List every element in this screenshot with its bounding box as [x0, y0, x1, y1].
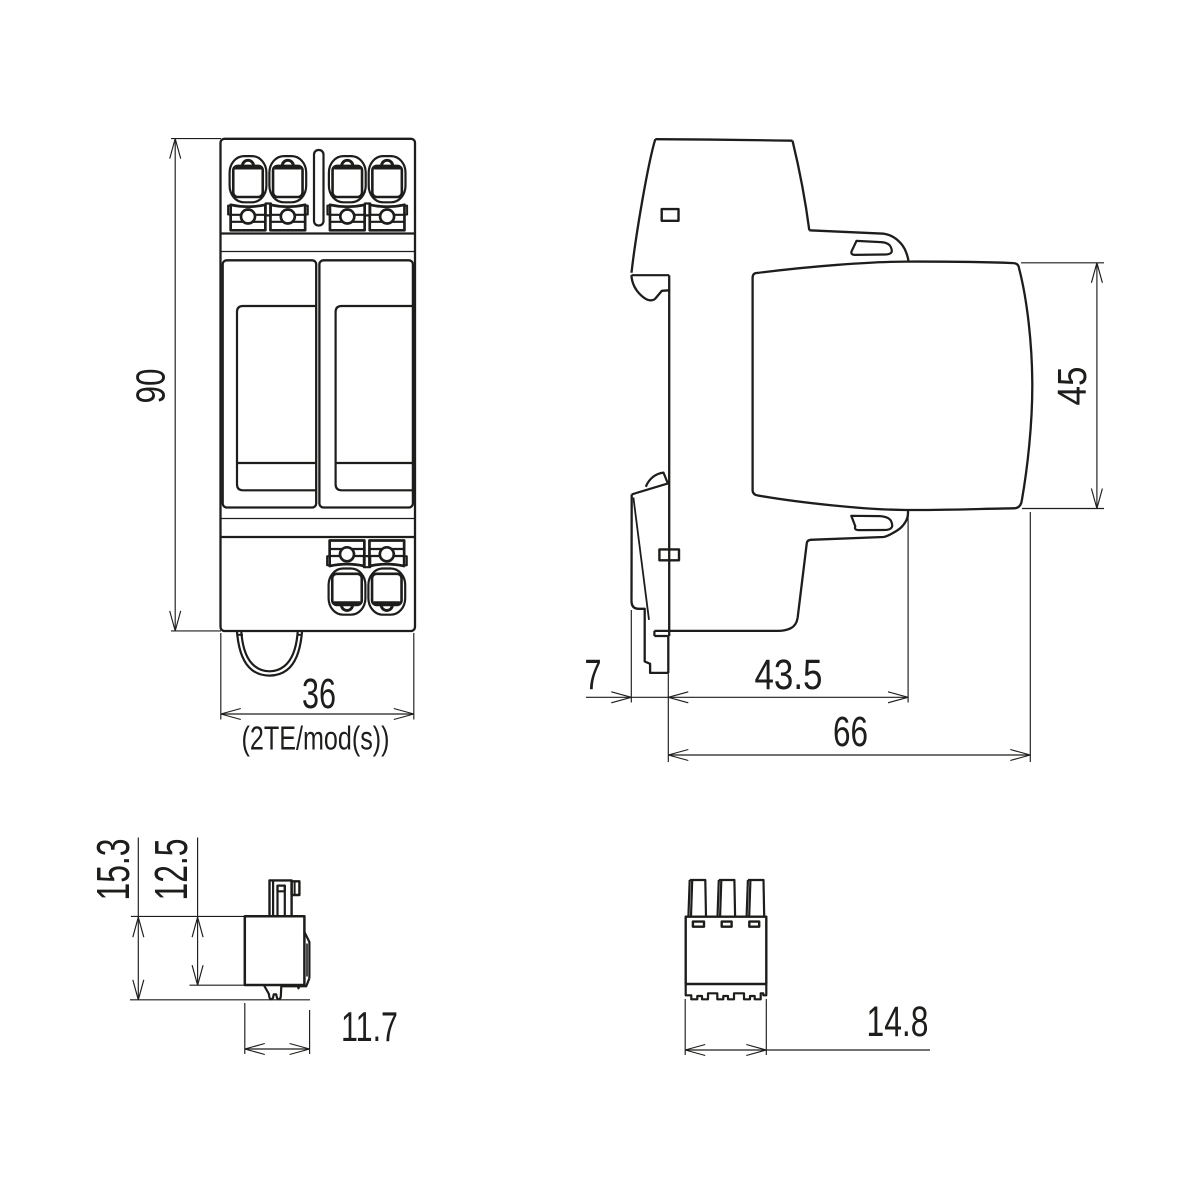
svg-text:(2TE/mod(s)): (2TE/mod(s)) — [242, 720, 390, 757]
svg-text:7: 7 — [585, 651, 602, 699]
svg-text:45: 45 — [1049, 367, 1095, 406]
svg-text:43.5: 43.5 — [755, 651, 823, 699]
svg-text:15.3: 15.3 — [87, 839, 139, 901]
svg-text:90: 90 — [128, 369, 174, 404]
svg-text:66: 66 — [833, 708, 868, 756]
svg-text:11.7: 11.7 — [341, 1003, 398, 1050]
svg-text:14.8: 14.8 — [867, 998, 929, 1046]
svg-text:12.5: 12.5 — [145, 839, 197, 901]
svg-text:36: 36 — [302, 670, 336, 718]
